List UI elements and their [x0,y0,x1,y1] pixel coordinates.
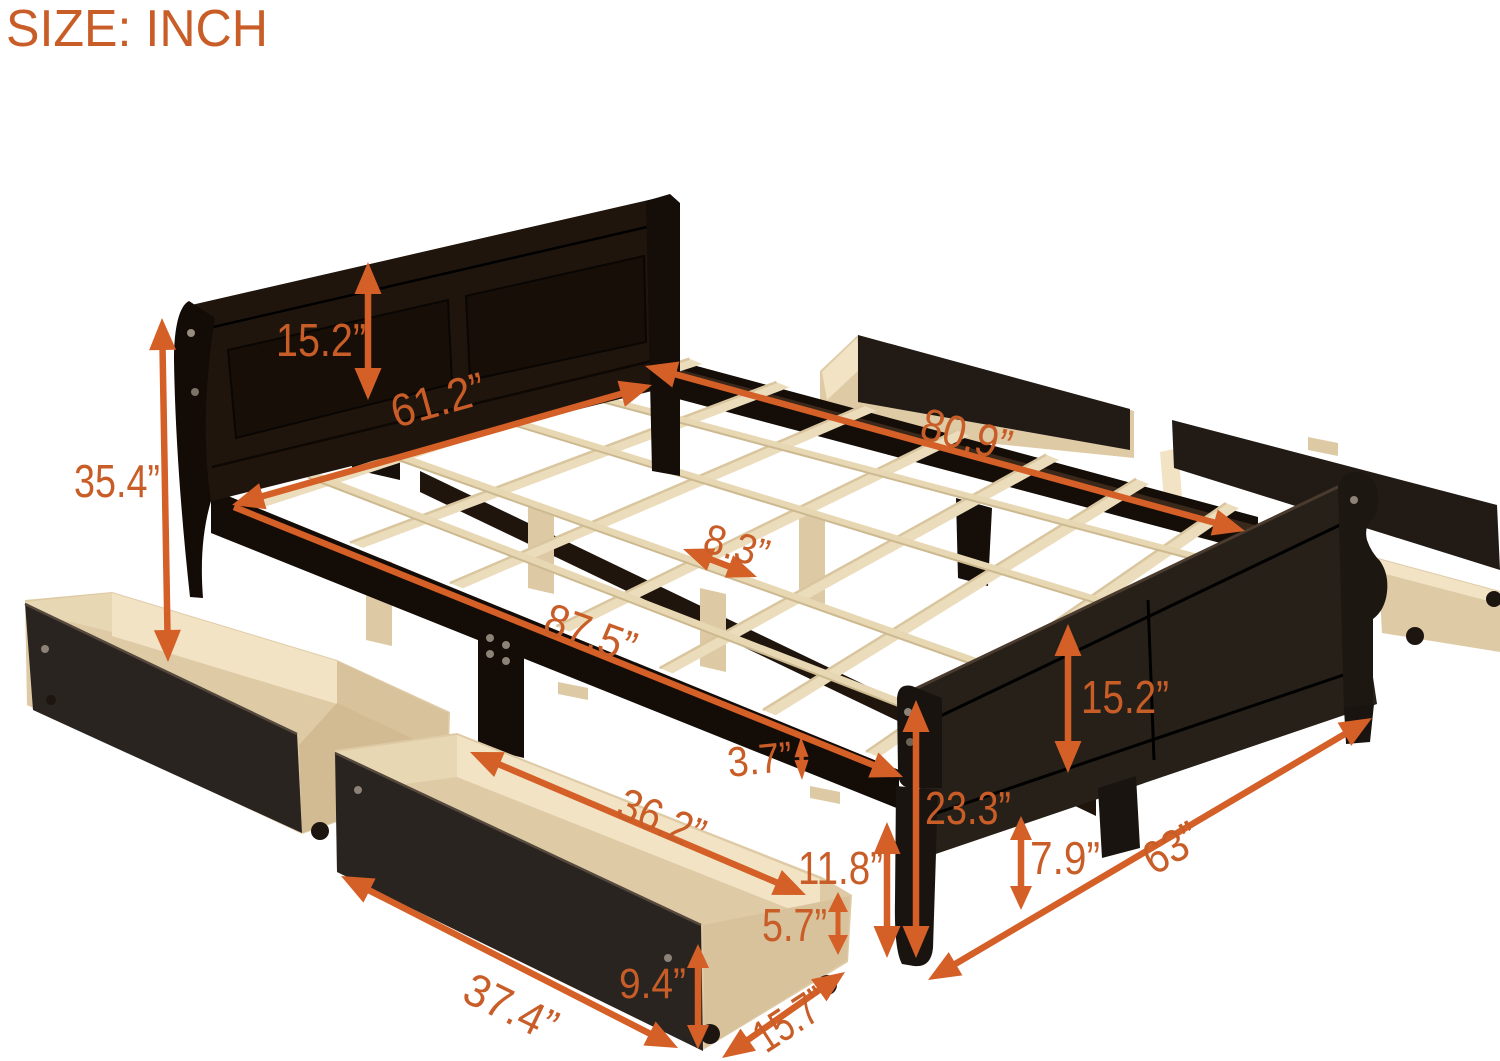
svg-text:9.4”: 9.4” [619,960,686,1008]
svg-text:15.2”: 15.2” [276,314,366,366]
svg-text:15.2”: 15.2” [1081,671,1169,723]
svg-text:3.7”: 3.7” [725,732,795,786]
svg-text:7.9”: 7.9” [1030,832,1100,884]
svg-text:23.3”: 23.3” [925,782,1011,834]
svg-text:SIZE: INCH: SIZE: INCH [6,0,268,58]
svg-text:5.7”: 5.7” [762,899,827,951]
svg-text:35.4”: 35.4” [74,455,160,507]
svg-text:11.8”: 11.8” [798,842,883,894]
